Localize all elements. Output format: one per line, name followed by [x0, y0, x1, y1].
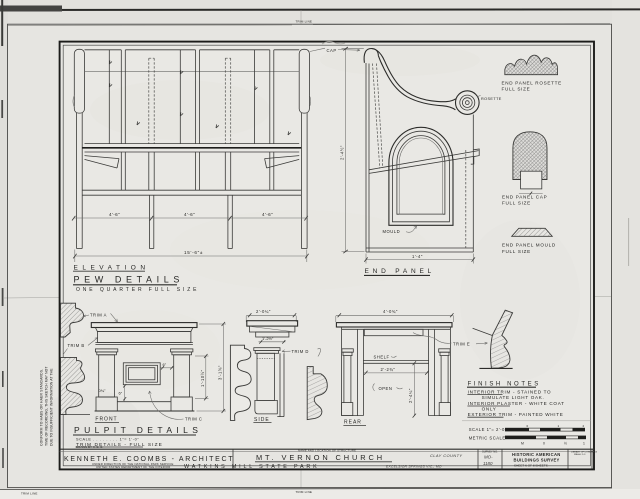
svg-text:2'-4½": 2'-4½" [339, 145, 344, 160]
svg-text:ONE QUARTER FULL SIZE: ONE QUARTER FULL SIZE [76, 287, 199, 293]
svg-text:TRIM E: TRIM E [453, 341, 470, 346]
svg-text:EXCELSIOR SPRINGS VIC., MO: EXCELSIOR SPRINGS VIC., MO [386, 464, 442, 468]
svg-text:2'-0¼": 2'-0¼" [256, 309, 271, 314]
svg-text:FULL SIZE: FULL SIZE [502, 87, 531, 92]
svg-text:SCALE 1"= 2'-0": SCALE 1"= 2'-0" [469, 427, 507, 432]
svg-text:ONLY: ONLY [482, 407, 497, 412]
svg-text:MO-: MO- [484, 455, 493, 460]
svg-text:1180: 1180 [483, 461, 493, 466]
svg-text:PULPIT DETAILS: PULPIT DETAILS [74, 425, 202, 435]
svg-text:DRAWN BY K. E. C.: DRAWN BY K. E. C. [76, 445, 103, 449]
svg-text:WATKINS MILL STATE PARK: WATKINS MILL STATE PARK [184, 464, 319, 470]
svg-text:½: ½ [564, 441, 567, 445]
svg-text:OPEN: OPEN [379, 386, 393, 391]
svg-text:CLAY COUNTY: CLAY COUNTY [430, 453, 462, 458]
svg-text:END PANEL MOULD: END PANEL MOULD [502, 242, 556, 247]
svg-text:END PANEL ROSETTE: END PANEL ROSETTE [502, 81, 562, 86]
svg-text:SIDE: SIDE [254, 417, 270, 423]
svg-text:PEW DETAILS: PEW DETAILS [74, 275, 184, 285]
svg-text:1'-2½": 1'-2½" [262, 336, 274, 341]
svg-text:METRIC SCALE: METRIC SCALE [469, 436, 506, 441]
svg-text:FULL SIZE: FULL SIZE [502, 201, 531, 206]
svg-text:WASH. D.C.: WASH. D.C. [574, 453, 586, 456]
svg-text:4'-6": 4'-6" [262, 212, 273, 217]
svg-text:HISTORIC AMERICAN: HISTORIC AMERICAN [512, 452, 561, 457]
svg-text:M: M [521, 441, 524, 445]
svg-text:TRIM LINE: TRIM LINE [296, 490, 313, 494]
svg-text:CONFORM TO HABS OR HAER STANDA: CONFORM TO HABS OR HAER STANDARDS. [40, 369, 44, 446]
svg-text:TRIM LINE: TRIM LINE [21, 492, 38, 496]
svg-text:4'-6": 4'-6" [109, 212, 120, 217]
svg-text:3'-1⅝": 3'-1⅝" [218, 365, 223, 380]
svg-text:TRIM LINE: TRIM LINE [296, 20, 313, 24]
svg-text:15'-6"±: 15'-6"± [184, 250, 203, 255]
svg-text:0¾": 0¾" [99, 388, 107, 393]
svg-text:UNITED STATES DEPARTMENT OF TH: UNITED STATES DEPARTMENT OF THE INTERIOR [96, 465, 171, 469]
svg-text:1'-10½": 1'-10½" [200, 369, 205, 387]
svg-text:REAR: REAR [344, 419, 362, 425]
svg-text:6": 6" [119, 391, 123, 396]
svg-text:TRIM A: TRIM A [90, 313, 107, 318]
svg-text:2'-2¾": 2'-2¾" [381, 367, 396, 372]
svg-text:MT. VERNON CHURCH: MT. VERNON CHURCH [256, 453, 385, 462]
svg-text:END PANEL: END PANEL [365, 268, 436, 275]
svg-text:ROSETTE: ROSETTE [481, 97, 502, 101]
svg-text:NAME AND LOCATION OF STRUCTURE: NAME AND LOCATION OF STRUCTURE [298, 449, 356, 453]
svg-text:FULL SIZE: FULL SIZE [502, 249, 531, 254]
svg-text:1'-4": 1'-4" [412, 254, 423, 259]
svg-text:TIME OF RECORDING, THIS SKETCH: TIME OF RECORDING, THIS SKETCH MAY NOT [45, 366, 49, 446]
svg-text:1: 1 [583, 441, 585, 445]
svg-text:EXTERIOR TRIM - PAINTED WHITE: EXTERIOR TRIM - PAINTED WHITE [468, 412, 564, 417]
svg-text:SIMULATE LIGHT OAK.: SIMULATE LIGHT OAK. [482, 395, 545, 400]
svg-text:4'-6": 4'-6" [184, 212, 195, 217]
svg-text:MOULD: MOULD [383, 229, 401, 234]
svg-text:TRIM B: TRIM B [68, 343, 85, 348]
svg-text:BUILDINGS SURVEY: BUILDINGS SURVEY [514, 457, 560, 462]
svg-text:SCALE . . . . . . . . 1"= 1'-0: SCALE . . . . . . . . 1"= 1'-0" [76, 437, 139, 441]
svg-text:END PANEL CAP: END PANEL CAP [502, 194, 547, 199]
svg-text:6": 6" [163, 362, 167, 367]
svg-text:0: 0 [543, 441, 545, 445]
svg-text:FINISH NOTES: FINISH NOTES [468, 381, 541, 387]
svg-text:LIBRARY OF CONGRESS: LIBRARY OF CONGRESS [571, 451, 598, 454]
svg-text:SURVEY NO.: SURVEY NO. [482, 449, 498, 453]
svg-text:2'-4¼": 2'-4¼" [408, 388, 413, 403]
svg-text:DUE TO INSUFFICIENT INFORMATIO: DUE TO INSUFFICIENT INFORMATION AT THE [50, 368, 54, 446]
svg-text:4'-0¾": 4'-0¾" [383, 309, 398, 314]
svg-text:CAP: CAP [327, 48, 337, 53]
svg-text:INTERIOR PLASTER - WHITE COAT: INTERIOR PLASTER - WHITE COAT [468, 401, 565, 406]
svg-text:INTERIOR TRIM - STAINED TO: INTERIOR TRIM - STAINED TO [468, 390, 552, 395]
svg-text:TRIM C: TRIM C [185, 417, 202, 422]
svg-text:SHELF: SHELF [374, 354, 390, 359]
svg-text:FRONT: FRONT [95, 417, 117, 423]
svg-text:ELEVATION: ELEVATION [74, 264, 150, 271]
svg-text:TRIM D: TRIM D [292, 349, 309, 354]
svg-text:SHEET 6 OF 8 SHEETS: SHEET 6 OF 8 SHEETS [514, 463, 548, 467]
